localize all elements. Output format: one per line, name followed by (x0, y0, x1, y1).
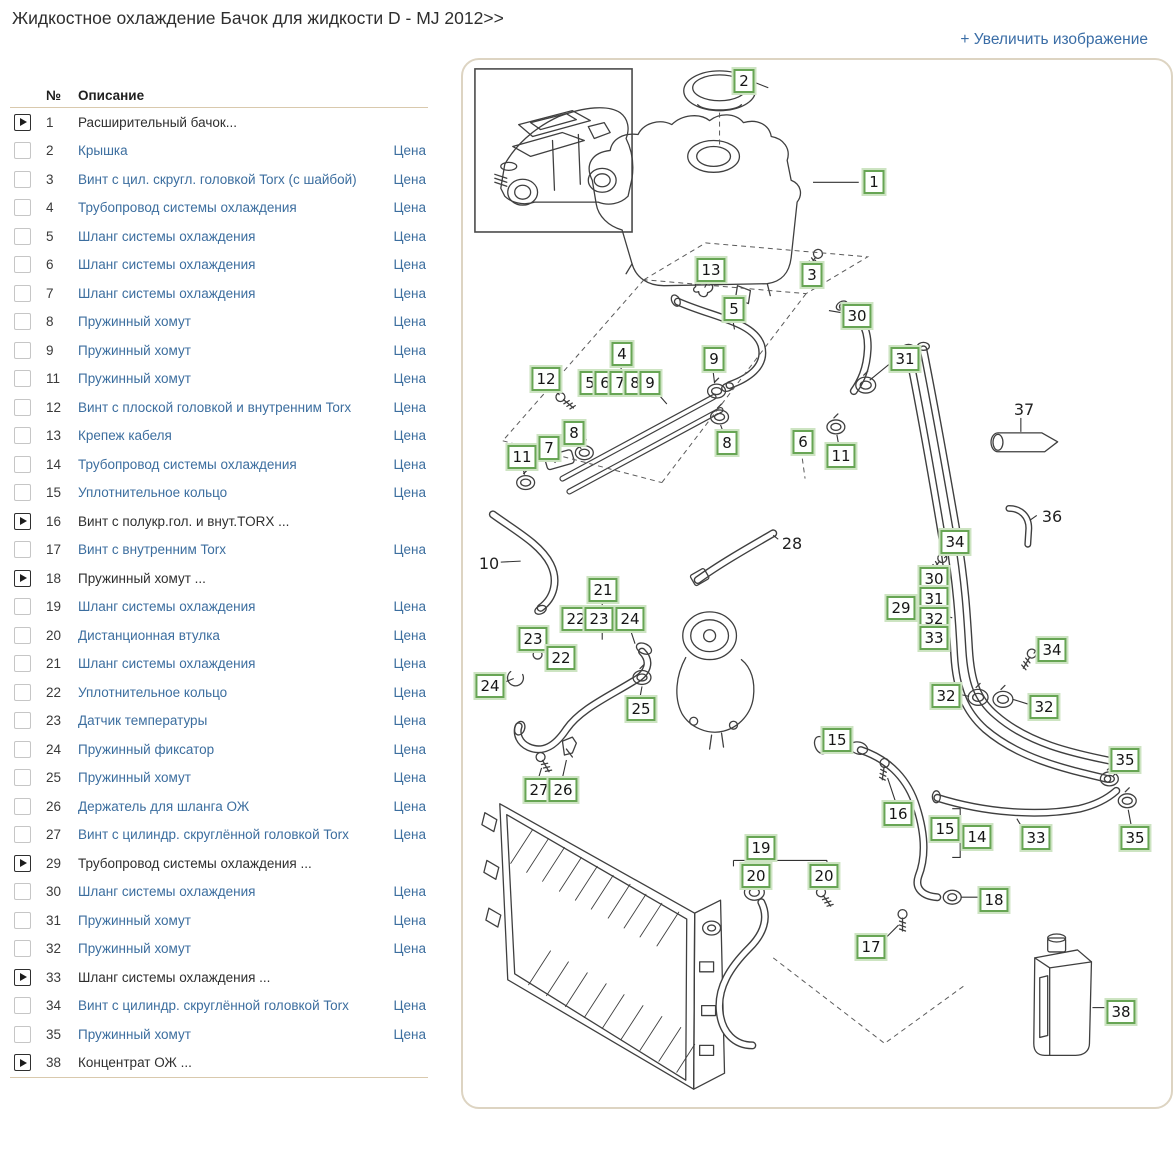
table-row: 25 Пружинный хомут Цена (10, 764, 428, 793)
parts-table: № Описание 1 Расширительный бачок... 2 К… (10, 88, 428, 1078)
callout-9[interactable]: 9 (640, 371, 661, 395)
play-icon (20, 973, 27, 981)
callout-17[interactable]: 17 (856, 935, 885, 959)
row-checkbox[interactable] (14, 912, 31, 929)
row-number: 19 (46, 599, 76, 614)
table-row: 18 Пружинный хомут ... (10, 564, 428, 593)
callout-32[interactable]: 32 (1029, 695, 1058, 719)
row-description: Концентрат ОЖ ... (78, 1055, 428, 1070)
table-row: 34 Винт с цилиндр. скруглённой головкой … (10, 992, 428, 1021)
row-number: 3 (46, 172, 76, 187)
callout-16[interactable]: 16 (883, 802, 912, 826)
row-number: 7 (46, 286, 76, 301)
row-number: 9 (46, 343, 76, 358)
callout-34[interactable]: 34 (1037, 638, 1066, 662)
callout-26[interactable]: 26 (548, 778, 577, 802)
table-row: 11 Пружинный хомут Цена (10, 365, 428, 394)
row-description[interactable]: Пружинный хомут (78, 770, 394, 785)
price-link[interactable]: Цена (394, 428, 426, 443)
row-checkbox[interactable] (14, 171, 31, 188)
row-number: 34 (46, 998, 76, 1013)
callout-31[interactable]: 31 (890, 347, 919, 371)
row-number: 16 (46, 514, 76, 529)
row-icon-cell (14, 883, 36, 900)
row-icon-cell (14, 513, 36, 530)
table-row: 17 Винт с внутренним Torx Цена (10, 536, 428, 565)
row-description[interactable]: Дистанционная втулка (78, 628, 394, 643)
table-row: 35 Пружинный хомут Цена (10, 1020, 428, 1049)
table-row: 21 Шланг системы охлаждения Цена (10, 650, 428, 679)
row-description[interactable]: Уплотнительное кольцо (78, 685, 394, 700)
row-number: 17 (46, 542, 76, 557)
callout-38[interactable]: 38 (1106, 1000, 1135, 1024)
row-description: Шланг системы охлаждения ... (78, 970, 428, 985)
row-description[interactable]: Пружинный хомут (78, 1027, 394, 1042)
row-icon-cell (14, 940, 36, 957)
table-row: 4 Трубопровод системы охлаждения Цена (10, 194, 428, 223)
table-row: 9 Пружинный хомут Цена (10, 336, 428, 365)
row-number: 11 (46, 371, 76, 386)
row-icon-cell (14, 912, 36, 929)
row-icon-cell (14, 741, 36, 758)
callout-25[interactable]: 25 (626, 697, 655, 721)
price-link[interactable]: Цена (394, 913, 426, 928)
row-icon-cell (14, 484, 36, 501)
table-row: 24 Пружинный фиксатор Цена (10, 735, 428, 764)
expand-button[interactable] (14, 1054, 31, 1071)
callout-layer: 2113353049311256789378687111136342810302… (463, 60, 1171, 1107)
row-icon-cell (14, 826, 36, 843)
row-number: 25 (46, 770, 76, 785)
callout-8[interactable]: 8 (717, 431, 738, 455)
row-description: Расширительный бачок... (78, 115, 428, 130)
row-description: Трубопровод системы охлаждения ... (78, 856, 428, 871)
header-description: Описание (78, 88, 144, 107)
table-row: 32 Пружинный хомут Цена (10, 935, 428, 964)
price-link[interactable]: Цена (394, 143, 426, 158)
callout-18[interactable]: 18 (979, 888, 1008, 912)
row-number: 4 (46, 200, 76, 215)
row-number: 21 (46, 656, 76, 671)
price-link[interactable]: Цена (394, 400, 426, 415)
row-number: 38 (46, 1055, 76, 1070)
row-description[interactable]: Пружинный фиксатор (78, 742, 394, 757)
callout-11[interactable]: 11 (507, 445, 536, 469)
row-number: 35 (46, 1027, 76, 1042)
table-row: 2 Крышка Цена (10, 137, 428, 166)
row-icon-cell (14, 313, 36, 330)
row-number: 26 (46, 799, 76, 814)
row-checkbox[interactable] (14, 256, 31, 273)
row-checkbox[interactable] (14, 798, 31, 815)
row-description[interactable]: Винт с внутренним Torx (78, 542, 394, 557)
row-checkbox[interactable] (14, 313, 31, 330)
callout-24[interactable]: 24 (475, 674, 504, 698)
callout-24[interactable]: 24 (615, 607, 644, 631)
callout-21[interactable]: 21 (588, 578, 617, 602)
callout-20[interactable]: 20 (741, 864, 770, 888)
row-checkbox[interactable] (14, 940, 31, 957)
row-description: Винт с полукр.гол. и внут.TORX ... (78, 514, 428, 529)
row-number: 33 (46, 970, 76, 985)
table-header: № Описание (10, 88, 428, 108)
price-link[interactable]: Цена (394, 343, 426, 358)
row-description[interactable]: Винт с плоской головкой и внутренним Tor… (78, 400, 394, 415)
row-description[interactable]: Шланг системы охлаждения (78, 229, 394, 244)
row-icon-cell (14, 171, 36, 188)
row-number: 5 (46, 229, 76, 244)
row-description[interactable]: Шланг системы охлаждения (78, 656, 394, 671)
row-description[interactable]: Пружинный хомут (78, 343, 394, 358)
row-checkbox[interactable] (14, 427, 31, 444)
row-number: 20 (46, 628, 76, 643)
row-icon-cell (14, 114, 36, 131)
callout-30[interactable]: 30 (842, 304, 871, 328)
row-checkbox[interactable] (14, 541, 31, 558)
row-icon-cell (14, 456, 36, 473)
callout-7[interactable]: 7 (539, 436, 560, 460)
row-icon-cell (14, 1026, 36, 1043)
play-icon (20, 118, 27, 126)
row-icon-cell (14, 342, 36, 359)
row-checkbox[interactable] (14, 370, 31, 387)
row-number: 12 (46, 400, 76, 415)
callout-15[interactable]: 15 (822, 728, 851, 752)
row-icon-cell (14, 769, 36, 786)
row-icon-cell (14, 570, 36, 587)
table-row: 16 Винт с полукр.гол. и внут.TORX ... (10, 507, 428, 536)
callout-35[interactable]: 35 (1120, 826, 1149, 850)
row-description[interactable]: Трубопровод системы охлаждения (78, 457, 394, 472)
row-icon-cell (14, 684, 36, 701)
row-number: 18 (46, 571, 76, 586)
row-icon-cell (14, 370, 36, 387)
table-row: 26 Держатель для шланга ОЖ Цена (10, 792, 428, 821)
row-checkbox[interactable] (14, 684, 31, 701)
row-description[interactable]: Винт с цилиндр. скруглённой головкой Tor… (78, 998, 394, 1013)
table-row: 8 Пружинный хомут Цена (10, 308, 428, 337)
table-row: 14 Трубопровод системы охлаждения Цена (10, 450, 428, 479)
row-checkbox[interactable] (14, 199, 31, 216)
callout-5[interactable]: 5 (724, 297, 745, 321)
row-checkbox[interactable] (14, 769, 31, 786)
callout-33[interactable]: 33 (919, 626, 948, 650)
row-icon-cell (14, 712, 36, 729)
row-checkbox[interactable] (14, 342, 31, 359)
expand-button[interactable] (14, 513, 31, 530)
price-link[interactable]: Цена (394, 713, 426, 728)
price-link[interactable]: Цена (394, 685, 426, 700)
row-description[interactable]: Пружинный хомут (78, 314, 394, 329)
row-description[interactable]: Шланг системы охлаждения (78, 257, 394, 272)
row-description[interactable]: Винт с цилиндр. скруглённой головкой Tor… (78, 827, 394, 842)
table-row: 31 Пружинный хомут Цена (10, 906, 428, 935)
row-description[interactable]: Пружинный хомут (78, 941, 394, 956)
play-icon (20, 517, 27, 525)
callout-2[interactable]: 2 (734, 69, 755, 93)
row-icon-cell (14, 855, 36, 872)
table-row: 6 Шланг системы охлаждения Цена (10, 251, 428, 280)
price-link[interactable]: Цена (394, 1027, 426, 1042)
callout-15[interactable]: 15 (930, 817, 959, 841)
row-number: 1 (46, 115, 76, 130)
row-checkbox[interactable] (14, 598, 31, 615)
row-checkbox[interactable] (14, 997, 31, 1014)
row-icon-cell (14, 142, 36, 159)
row-checkbox[interactable] (14, 655, 31, 672)
table-rows: 1 Расширительный бачок... 2 Крышка Цена … (10, 108, 428, 1078)
row-checkbox[interactable] (14, 1026, 31, 1043)
row-number: 29 (46, 856, 76, 871)
row-description[interactable]: Крепеж кабеля (78, 428, 394, 443)
table-row: 13 Крепеж кабеля Цена (10, 422, 428, 451)
callout-11[interactable]: 11 (826, 444, 855, 468)
row-checkbox[interactable] (14, 627, 31, 644)
row-description[interactable]: Крышка (78, 143, 394, 158)
row-number: 31 (46, 913, 76, 928)
callout-33[interactable]: 33 (1021, 826, 1050, 850)
table-row: 7 Шланг системы охлаждения Цена (10, 279, 428, 308)
callout-1[interactable]: 1 (864, 170, 885, 194)
callout-29[interactable]: 29 (886, 596, 915, 620)
row-icon-cell (14, 1054, 36, 1071)
table-row: 20 Дистанционная втулка Цена (10, 621, 428, 650)
table-row: 3 Винт с цил. скругл. головкой Torx (с ш… (10, 165, 428, 194)
row-icon-cell (14, 627, 36, 644)
row-description[interactable]: Пружинный хомут (78, 371, 394, 386)
row-description: Пружинный хомут ... (78, 571, 428, 586)
callout-34[interactable]: 34 (940, 530, 969, 554)
enlarge-image-link[interactable]: + Увеличить изображение (960, 31, 1148, 49)
row-icon-cell (14, 399, 36, 416)
diagram-panel: 2113353049311256789378687111136342810302… (461, 58, 1173, 1109)
price-link[interactable]: Цена (394, 314, 426, 329)
row-description[interactable]: Шланг системы охлаждения (78, 286, 394, 301)
row-description[interactable]: Пружинный хомут (78, 913, 394, 928)
row-checkbox[interactable] (14, 456, 31, 473)
price-link[interactable]: Цена (394, 229, 426, 244)
callout-35[interactable]: 35 (1110, 748, 1139, 772)
row-number: 22 (46, 685, 76, 700)
price-link[interactable]: Цена (394, 884, 426, 899)
play-icon (20, 859, 27, 867)
callout-19[interactable]: 19 (746, 836, 775, 860)
callout-3[interactable]: 3 (802, 263, 823, 287)
price-link[interactable]: Цена (394, 799, 426, 814)
row-icon-cell (14, 285, 36, 302)
row-description[interactable]: Винт с цил. скругл. головкой Torx (с шай… (78, 172, 394, 187)
callout-6[interactable]: 6 (793, 430, 814, 454)
price-link[interactable]: Цена (394, 998, 426, 1013)
callout-23[interactable]: 23 (518, 627, 547, 651)
row-icon-cell (14, 655, 36, 672)
price-link[interactable]: Цена (394, 827, 426, 842)
table-row: 38 Концентрат ОЖ ... (10, 1049, 428, 1078)
row-number: 14 (46, 457, 76, 472)
price-link[interactable]: Цена (394, 599, 426, 614)
callout-13[interactable]: 13 (696, 258, 725, 282)
row-icon-cell (14, 969, 36, 986)
row-number: 6 (46, 257, 76, 272)
callout-8[interactable]: 8 (564, 421, 585, 445)
row-icon-cell (14, 256, 36, 273)
row-icon-cell (14, 228, 36, 245)
row-icon-cell (14, 427, 36, 444)
row-checkbox[interactable] (14, 826, 31, 843)
table-row: 29 Трубопровод системы охлаждения ... (10, 849, 428, 878)
row-number: 15 (46, 485, 76, 500)
table-row: 1 Расширительный бачок... (10, 108, 428, 137)
header-number: № (46, 88, 76, 107)
table-row: 30 Шланг системы охлаждения Цена (10, 878, 428, 907)
row-checkbox[interactable] (14, 399, 31, 416)
callout-4[interactable]: 4 (612, 342, 633, 366)
row-number: 27 (46, 827, 76, 842)
row-number: 13 (46, 428, 76, 443)
expand-button[interactable] (14, 570, 31, 587)
row-description[interactable]: Шланг системы охлаждения (78, 599, 394, 614)
callout-36: 36 (1042, 507, 1062, 527)
row-checkbox[interactable] (14, 142, 31, 159)
price-link[interactable]: Цена (394, 742, 426, 757)
row-number: 32 (46, 941, 76, 956)
price-link[interactable]: Цена (394, 257, 426, 272)
expand-button[interactable] (14, 114, 31, 131)
row-number: 23 (46, 713, 76, 728)
row-checkbox[interactable] (14, 712, 31, 729)
row-icon-cell (14, 997, 36, 1014)
price-link[interactable]: Цена (394, 286, 426, 301)
price-link[interactable]: Цена (394, 628, 426, 643)
row-number: 30 (46, 884, 76, 899)
table-row: 33 Шланг системы охлаждения ... (10, 963, 428, 992)
price-link[interactable]: Цена (394, 770, 426, 785)
row-description[interactable]: Держатель для шланга ОЖ (78, 799, 394, 814)
table-row: 27 Винт с цилиндр. скруглённой головкой … (10, 821, 428, 850)
callout-37: 37 (1014, 400, 1034, 420)
price-link[interactable]: Цена (394, 485, 426, 500)
callout-14[interactable]: 14 (962, 825, 991, 849)
table-row: 5 Шланг системы охлаждения Цена (10, 222, 428, 251)
table-row: 19 Шланг системы охлаждения Цена (10, 593, 428, 622)
page-title: Жидкостное охлаждение Бачок для жидкости… (12, 8, 504, 29)
row-icon-cell (14, 598, 36, 615)
table-row: 12 Винт с плоской головкой и внутренним … (10, 393, 428, 422)
row-description[interactable]: Шланг системы охлаждения (78, 884, 394, 899)
row-checkbox[interactable] (14, 484, 31, 501)
row-icon-cell (14, 541, 36, 558)
table-row: 22 Уплотнительное кольцо Цена (10, 678, 428, 707)
play-icon (20, 1059, 27, 1067)
callout-10: 10 (479, 554, 499, 574)
price-link[interactable]: Цена (394, 371, 426, 386)
callout-22[interactable]: 22 (546, 646, 575, 670)
price-link[interactable]: Цена (394, 172, 426, 187)
callout-23[interactable]: 23 (584, 607, 613, 631)
table-row: 23 Датчик температуры Цена (10, 707, 428, 736)
callout-32[interactable]: 32 (931, 684, 960, 708)
callout-12[interactable]: 12 (531, 367, 560, 391)
row-description[interactable]: Трубопровод системы охлаждения (78, 200, 394, 215)
row-checkbox[interactable] (14, 883, 31, 900)
row-icon-cell (14, 798, 36, 815)
price-link[interactable]: Цена (394, 542, 426, 557)
expand-button[interactable] (14, 969, 31, 986)
price-link[interactable]: Цена (394, 656, 426, 671)
price-link[interactable]: Цена (394, 457, 426, 472)
row-icon-cell (14, 199, 36, 216)
table-row: 15 Уплотнительное кольцо Цена (10, 479, 428, 508)
row-checkbox[interactable] (14, 228, 31, 245)
price-link[interactable]: Цена (394, 200, 426, 215)
row-description[interactable]: Уплотнительное кольцо (78, 485, 394, 500)
row-description[interactable]: Датчик температуры (78, 713, 394, 728)
row-checkbox[interactable] (14, 741, 31, 758)
row-checkbox[interactable] (14, 285, 31, 302)
row-number: 2 (46, 143, 76, 158)
row-number: 24 (46, 742, 76, 757)
callout-9[interactable]: 9 (704, 347, 725, 371)
play-icon (20, 574, 27, 582)
callout-20[interactable]: 20 (809, 864, 838, 888)
callout-28: 28 (782, 534, 802, 554)
price-link[interactable]: Цена (394, 941, 426, 956)
row-number: 8 (46, 314, 76, 329)
expand-button[interactable] (14, 855, 31, 872)
